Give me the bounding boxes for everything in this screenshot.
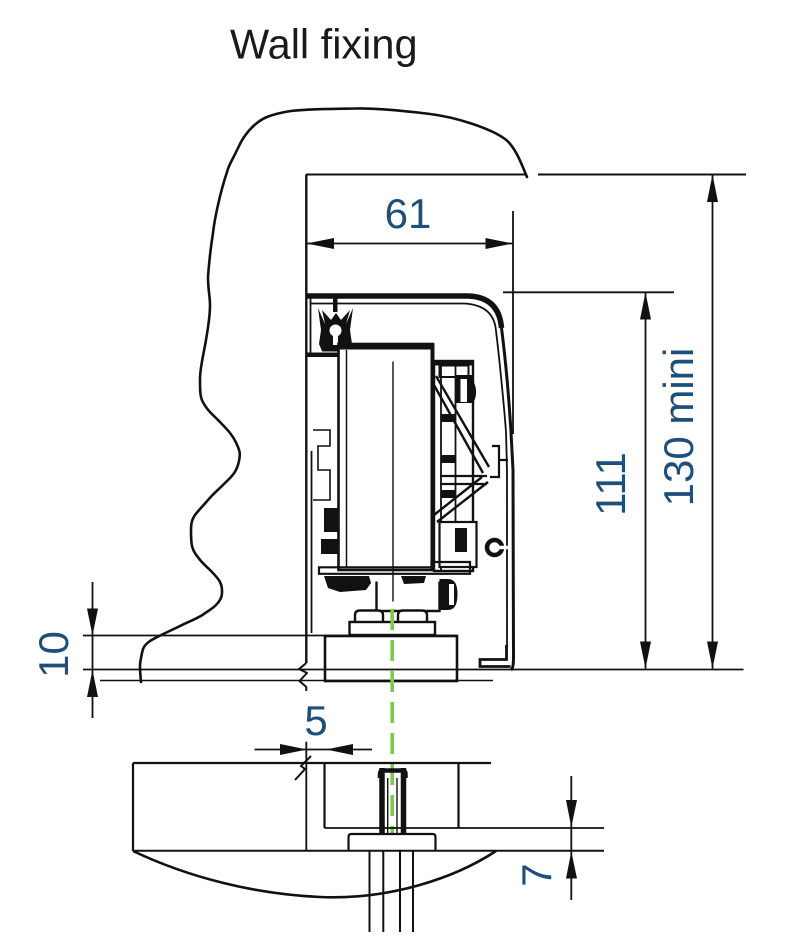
svg-text:61: 61 [385,190,432,237]
svg-text:Wall fixing: Wall fixing [230,21,418,68]
svg-text:10: 10 [30,631,77,678]
svg-text:7: 7 [513,863,560,886]
svg-text:5: 5 [304,697,327,744]
svg-text:130 mini: 130 mini [655,348,702,507]
svg-text:111: 111 [587,452,634,516]
